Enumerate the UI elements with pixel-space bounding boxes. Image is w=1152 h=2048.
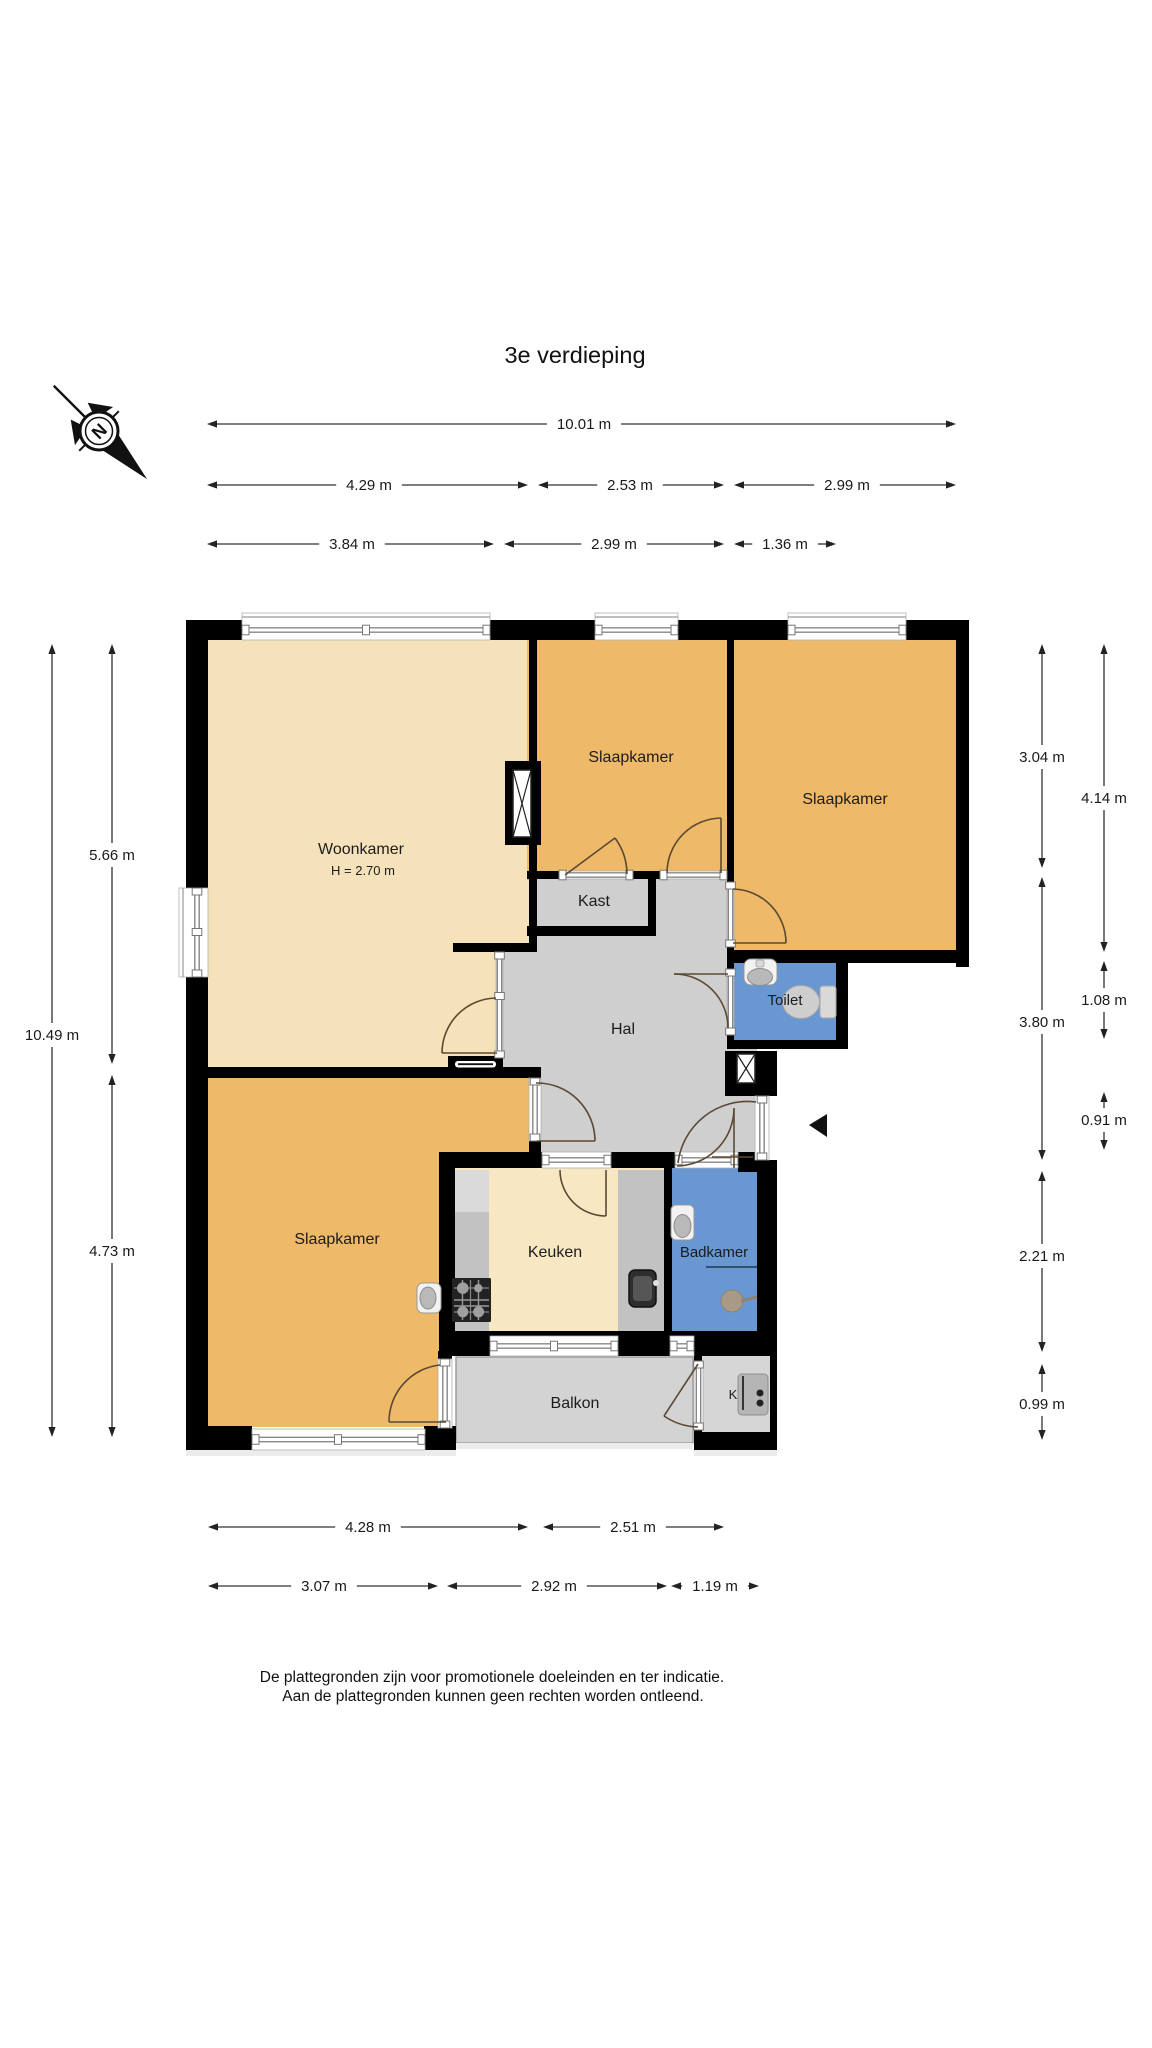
svg-text:4.28 m: 4.28 m bbox=[345, 1519, 391, 1536]
svg-text:De plattegronden zijn voor pro: De plattegronden zijn voor promotionele … bbox=[260, 1669, 724, 1686]
svg-text:1.36 m: 1.36 m bbox=[762, 536, 808, 553]
svg-text:0.91 m: 0.91 m bbox=[1081, 1112, 1127, 1129]
svg-text:2.51 m: 2.51 m bbox=[610, 1519, 656, 1536]
svg-text:3.07 m: 3.07 m bbox=[301, 1578, 347, 1595]
svg-text:Slaapkamer: Slaapkamer bbox=[588, 749, 674, 766]
svg-text:10.01 m: 10.01 m bbox=[557, 416, 611, 433]
svg-text:K: K bbox=[729, 1387, 738, 1402]
svg-text:2.92 m: 2.92 m bbox=[531, 1578, 577, 1595]
svg-text:Balkon: Balkon bbox=[551, 1395, 600, 1412]
svg-text:2.53 m: 2.53 m bbox=[607, 477, 653, 494]
svg-text:Kast: Kast bbox=[578, 893, 611, 910]
svg-text:Aan de plattegronden kunnen ge: Aan de plattegronden kunnen geen rechten… bbox=[282, 1688, 703, 1705]
svg-text:Badkamer: Badkamer bbox=[680, 1244, 748, 1261]
svg-text:4.14 m: 4.14 m bbox=[1081, 790, 1127, 807]
svg-text:2.99 m: 2.99 m bbox=[824, 477, 870, 494]
svg-text:0.99 m: 0.99 m bbox=[1019, 1396, 1065, 1413]
svg-text:Keuken: Keuken bbox=[528, 1244, 582, 1261]
svg-text:1.19 m: 1.19 m bbox=[692, 1578, 738, 1595]
svg-text:1.08 m: 1.08 m bbox=[1081, 992, 1127, 1009]
svg-text:Slaapkamer: Slaapkamer bbox=[802, 791, 888, 808]
svg-text:3.80 m: 3.80 m bbox=[1019, 1014, 1065, 1031]
svg-text:5.66 m: 5.66 m bbox=[89, 847, 135, 864]
svg-text:4.29 m: 4.29 m bbox=[346, 477, 392, 494]
svg-text:2.99 m: 2.99 m bbox=[591, 536, 637, 553]
svg-text:3e verdieping: 3e verdieping bbox=[504, 342, 645, 368]
svg-text:10.49 m: 10.49 m bbox=[25, 1027, 79, 1044]
svg-text:4.73 m: 4.73 m bbox=[89, 1243, 135, 1260]
svg-text:Woonkamer: Woonkamer bbox=[318, 841, 405, 858]
svg-text:Hal: Hal bbox=[611, 1021, 635, 1038]
svg-text:H = 2.70 m: H = 2.70 m bbox=[331, 863, 395, 878]
svg-text:Toilet: Toilet bbox=[767, 992, 803, 1009]
svg-text:3.04 m: 3.04 m bbox=[1019, 749, 1065, 766]
svg-text:Slaapkamer: Slaapkamer bbox=[294, 1231, 380, 1248]
svg-text:2.21 m: 2.21 m bbox=[1019, 1248, 1065, 1265]
svg-text:3.84 m: 3.84 m bbox=[329, 536, 375, 553]
